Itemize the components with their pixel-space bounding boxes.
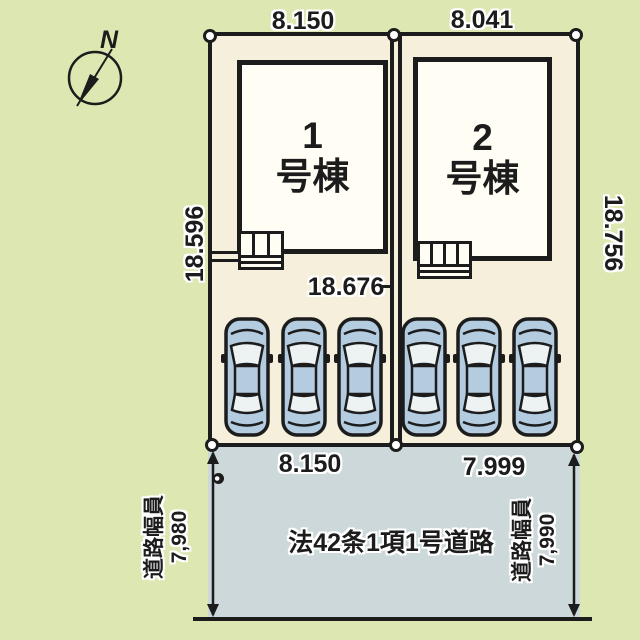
building-2-number: 2 [472,118,493,159]
site-plan: N 1 号棟 2 号棟 [0,0,640,640]
dim-lot1-top: 8.150 [243,7,363,36]
boundary-marker [203,29,217,43]
road-width-left-value: 7,980 [167,482,192,592]
fence-line [211,251,238,262]
building-1: 1 号棟 [237,60,388,254]
road-width-right-text: 道路幅員 [510,485,535,595]
compass-icon [58,16,138,116]
boundary-marker [389,438,403,452]
building-2-suffix: 号棟 [446,159,520,200]
dim-lot2-top: 8.041 [422,6,542,35]
entrance-porch-icon-2 [417,241,472,279]
entrance-porch-icon-1 [238,231,284,270]
dim-right-depth: 18.756 [599,178,627,288]
boundary-marker [569,28,583,42]
dim-middle-tick [382,285,392,288]
north-label: N [100,26,118,55]
road-width-dim-line-left [204,449,222,619]
dim-lot2-bottom: 7.999 [434,453,554,482]
road-width-right-value: 7,990 [535,485,560,595]
building-1-number: 1 [302,116,323,157]
road-width-dim-line-right [565,451,583,619]
dim-left-depth: 18.596 [181,189,209,299]
road-width-label-right: 道路幅員 7,990 [510,485,562,595]
road-bottom-line [193,617,592,621]
road-width-left-text: 道路幅員 [142,482,167,592]
boundary-marker [387,28,401,42]
building-1-suffix: 号棟 [276,157,350,198]
dim-lot1-bottom: 8.150 [250,450,370,479]
road-width-label-left: 道路幅員 7,980 [142,482,194,592]
lot-boundary-line [390,36,402,443]
road-name: 法42条1項1号道路 [266,523,516,559]
building-2: 2 号棟 [413,57,552,261]
